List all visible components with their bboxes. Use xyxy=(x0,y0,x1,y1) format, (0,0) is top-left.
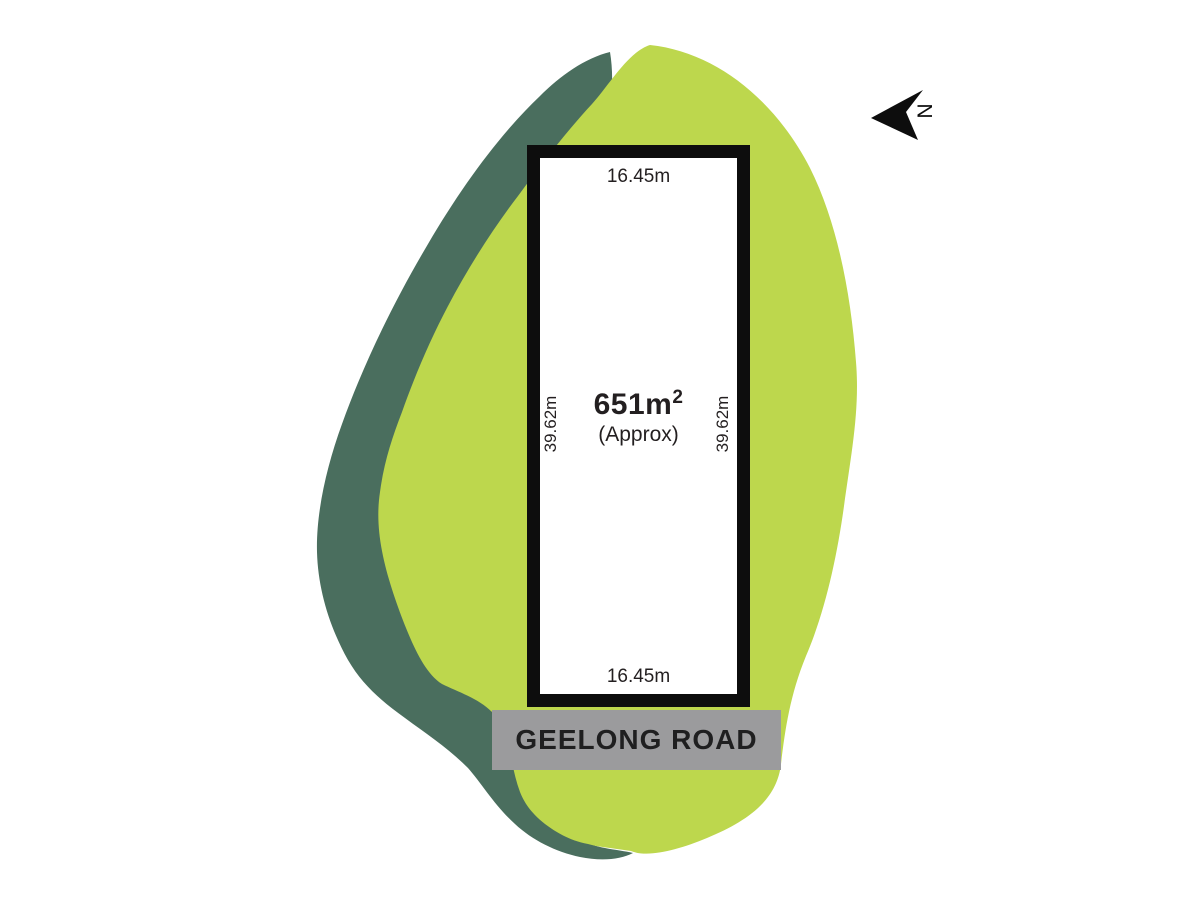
road-bar: GEELONG ROAD xyxy=(492,710,781,770)
lot-area-block: 651m2 (Approx) xyxy=(540,388,737,446)
lot-area-qualifier: (Approx) xyxy=(540,423,737,446)
lot-boundary: 16.45m 39.62m 651m2 (Approx) 39.62m 16.4… xyxy=(527,145,750,707)
lot-area-superscript: 2 xyxy=(672,387,683,408)
depth-dimension-right: 39.62m xyxy=(713,369,733,479)
road-name-label: GEELONG ROAD xyxy=(515,724,757,756)
lot-area-value: 651m2 xyxy=(540,388,737,421)
north-letter-label: N xyxy=(912,103,936,118)
frontage-dimension-top: 16.45m xyxy=(540,166,737,188)
lot-area-number: 651m xyxy=(594,388,673,421)
frontage-dimension-bottom: 16.45m xyxy=(540,666,737,688)
site-plan-canvas: 16.45m 39.62m 651m2 (Approx) 39.62m 16.4… xyxy=(0,0,1200,900)
